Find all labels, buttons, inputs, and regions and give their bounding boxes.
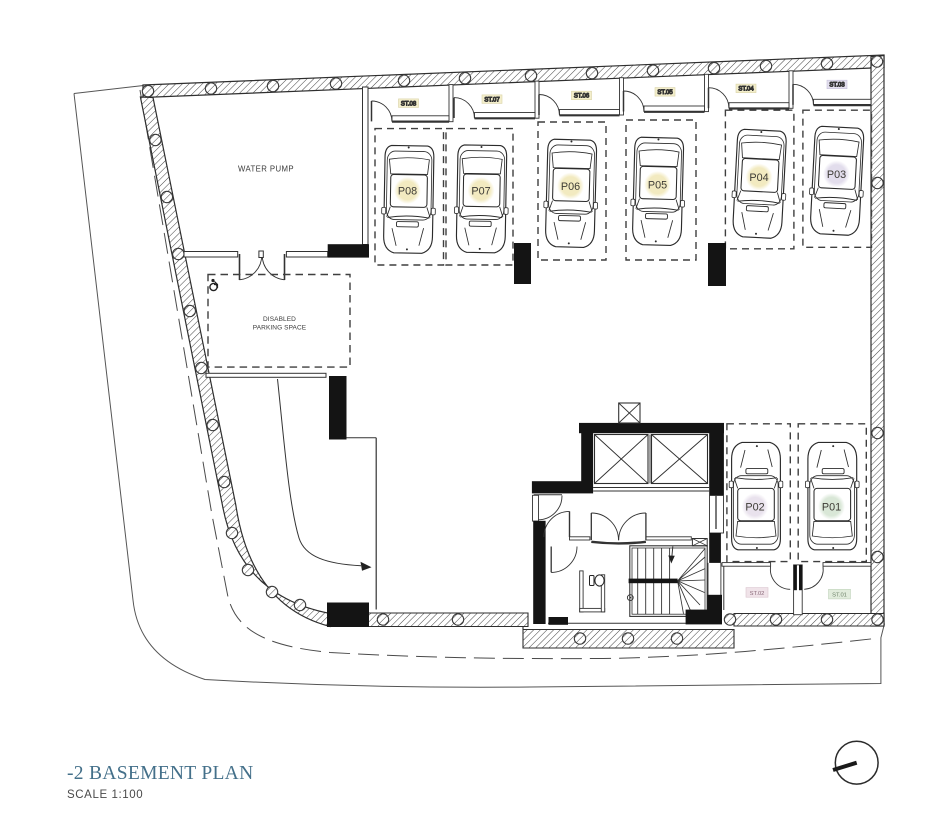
svg-text:P04: P04 — [749, 172, 768, 184]
svg-text:ST.03: ST.03 — [829, 83, 845, 89]
svg-text:P03: P03 — [827, 169, 846, 181]
svg-text:WATER PUMP: WATER PUMP — [238, 165, 294, 174]
svg-text:ST.04: ST.04 — [738, 87, 754, 93]
svg-text:ST.05: ST.05 — [657, 90, 673, 96]
svg-text:P06: P06 — [561, 181, 580, 193]
svg-text:PARKING SPACE: PARKING SPACE — [253, 325, 307, 332]
svg-text:ST.08: ST.08 — [401, 101, 417, 107]
svg-text:ST.07: ST.07 — [484, 97, 500, 103]
svg-text:ST.02: ST.02 — [750, 591, 765, 597]
svg-text:ST.01: ST.01 — [832, 593, 847, 599]
svg-text:P05: P05 — [648, 180, 667, 192]
svg-text:-2 BASEMENT PLAN: -2 BASEMENT PLAN — [67, 763, 253, 784]
svg-text:P07: P07 — [471, 186, 490, 198]
svg-text:ST.06: ST.06 — [574, 94, 590, 100]
svg-text:DISABLED: DISABLED — [263, 316, 296, 323]
svg-text:P02: P02 — [745, 502, 764, 514]
svg-text:P01: P01 — [822, 502, 841, 514]
svg-text:P08: P08 — [398, 186, 417, 198]
svg-text:SCALE 1:100: SCALE 1:100 — [67, 789, 143, 801]
